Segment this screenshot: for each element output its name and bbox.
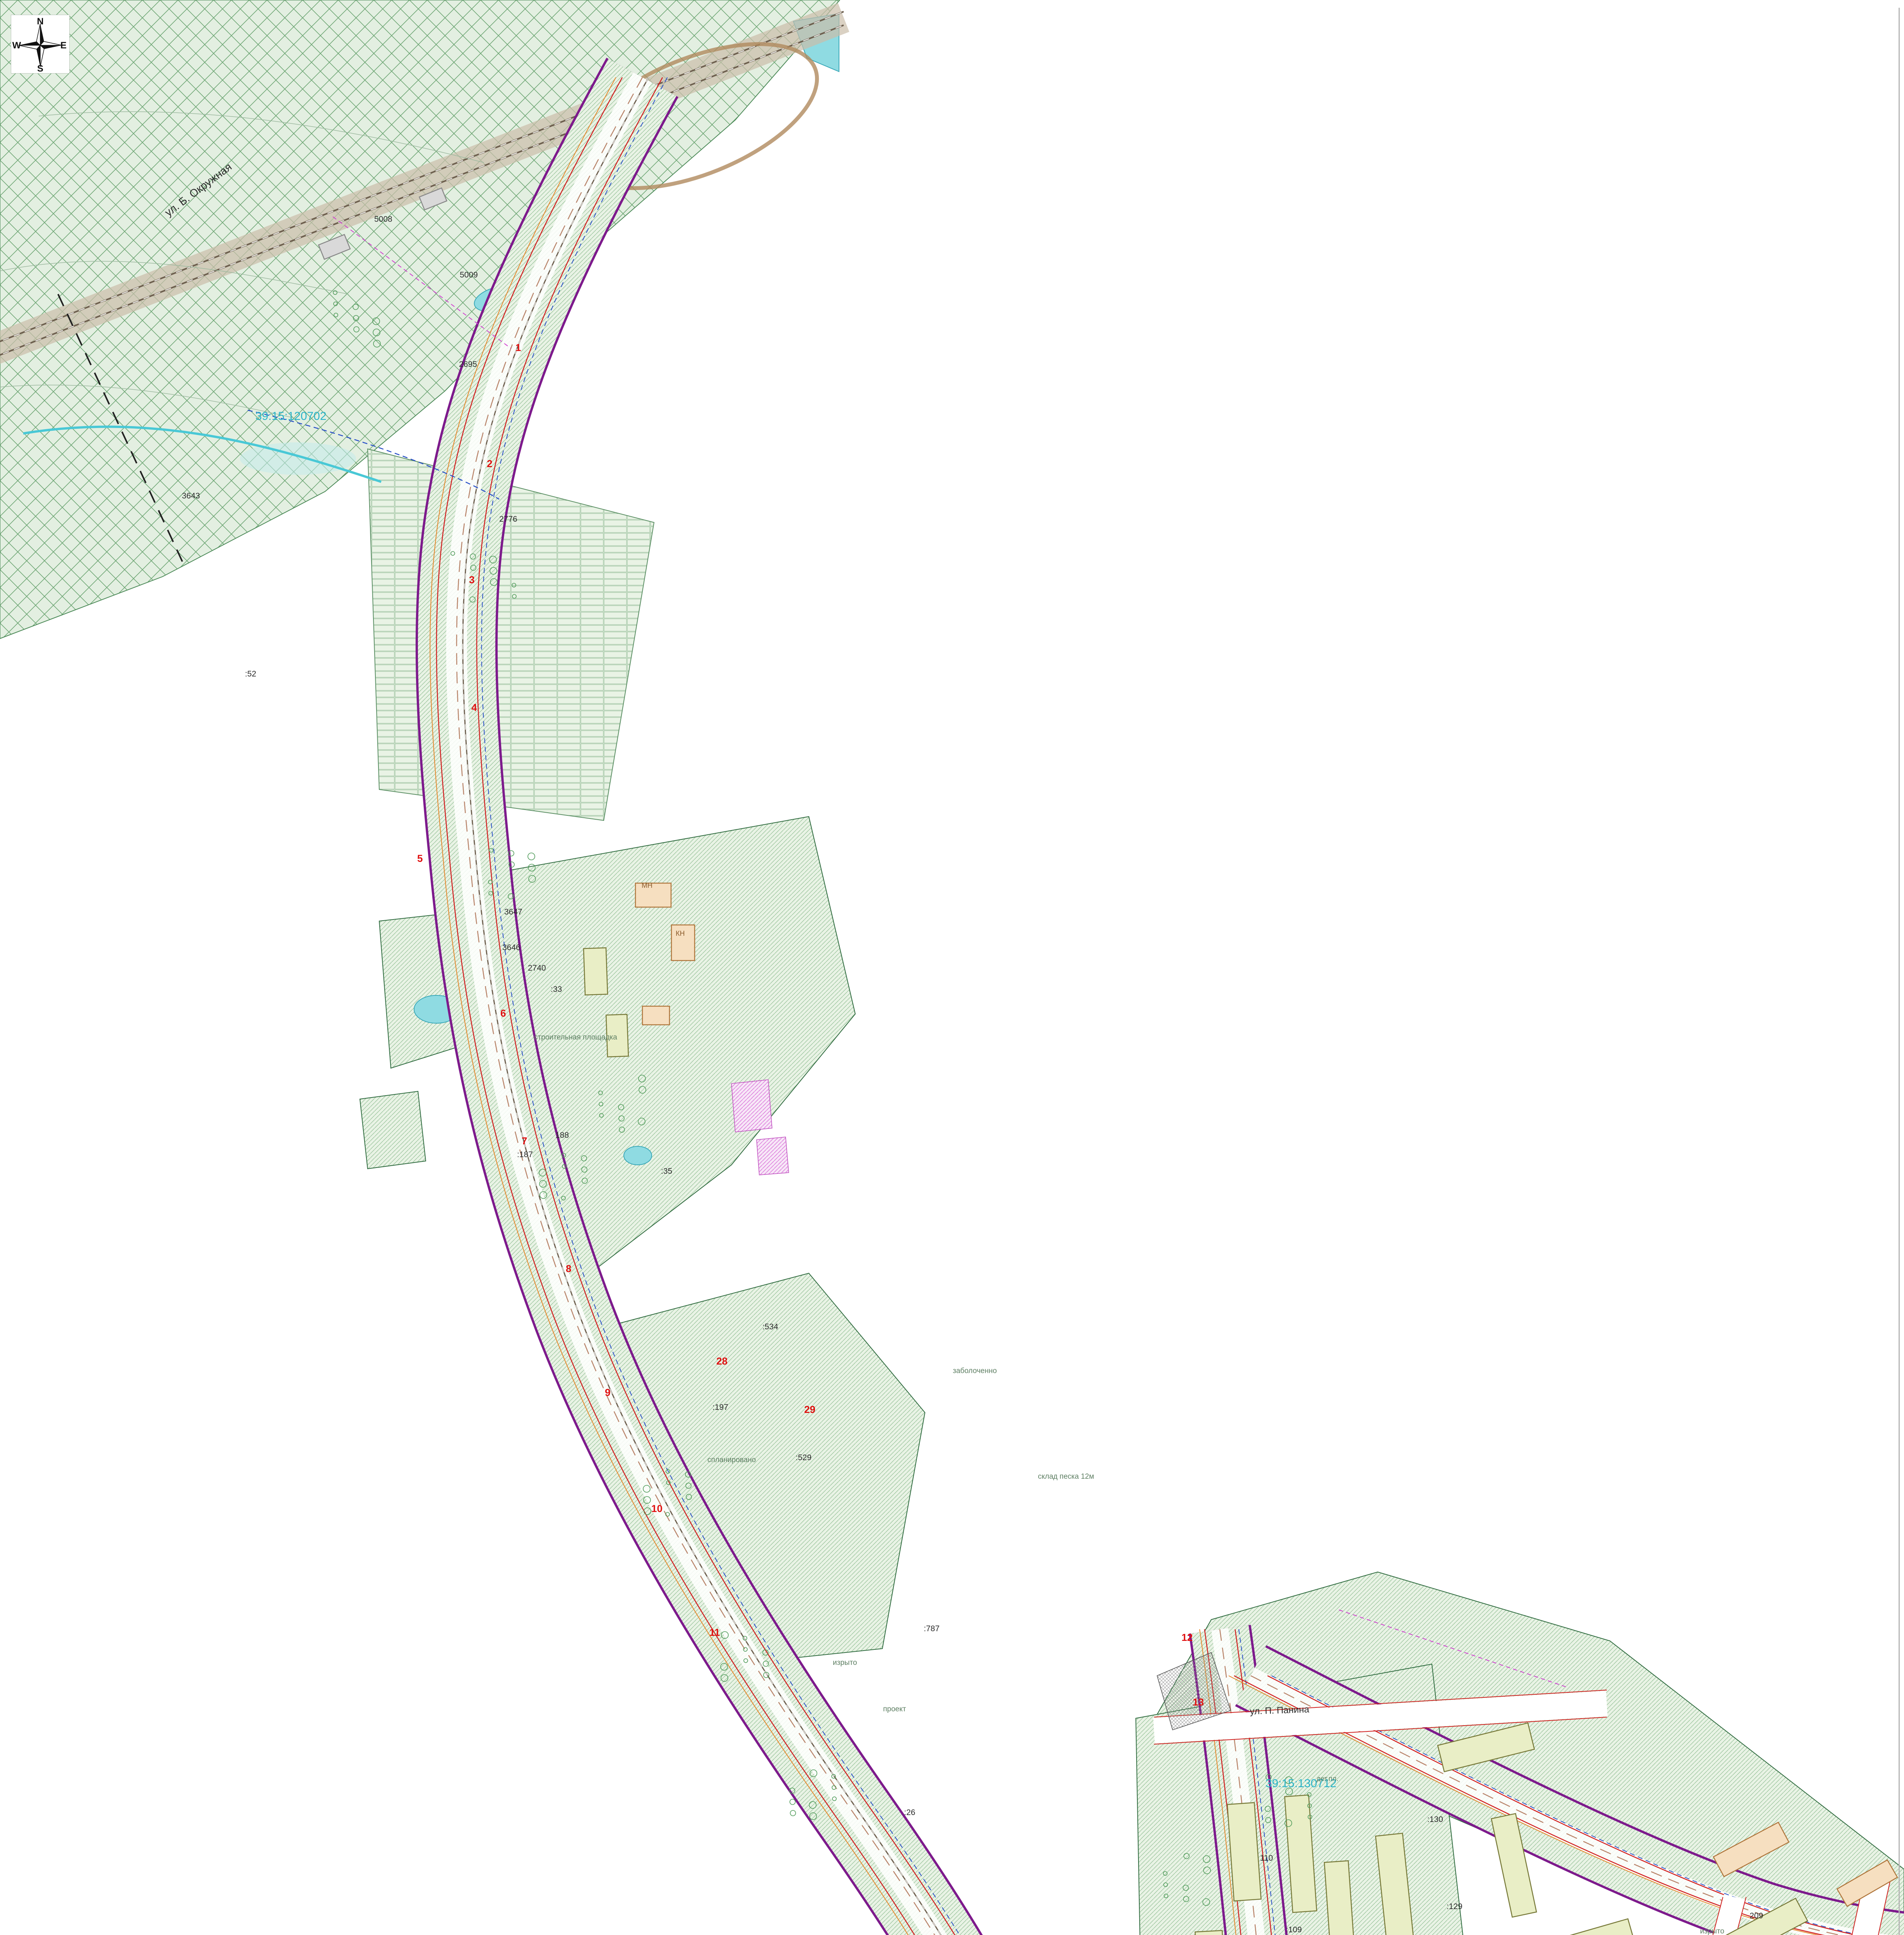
map-label: :187 bbox=[517, 1150, 533, 1159]
map-label: 28 bbox=[716, 1355, 728, 1367]
map-label: :787 bbox=[924, 1624, 940, 1633]
map-label: :534 bbox=[762, 1322, 778, 1331]
map-label: :26 bbox=[904, 1808, 915, 1817]
map-label: строительная площадка bbox=[534, 1033, 617, 1041]
map-label: :129 bbox=[1447, 1902, 1462, 1911]
map-label: :109 bbox=[1286, 1925, 1302, 1934]
map-label: 2 bbox=[487, 458, 492, 469]
map-label: 5 bbox=[417, 853, 423, 864]
map-label: спланировано bbox=[707, 1456, 756, 1464]
map-label: 3643 bbox=[182, 491, 200, 500]
map-label: 5008 bbox=[374, 215, 392, 224]
compass-rose: N E S W bbox=[11, 15, 70, 74]
map-label: 7 bbox=[522, 1135, 527, 1147]
map-label: изрыто bbox=[833, 1659, 857, 1667]
page-border-right bbox=[1899, 8, 1900, 1935]
map-base-layer bbox=[0, 0, 1904, 1935]
map-label: 8 bbox=[566, 1263, 571, 1274]
map-label: 110 bbox=[1260, 1854, 1273, 1863]
map-label: :33 bbox=[551, 985, 562, 994]
map-label: проект bbox=[883, 1705, 906, 1713]
compass-w: W bbox=[12, 40, 21, 51]
map-label: 5009 bbox=[460, 271, 478, 279]
map-label: склад песка 12м bbox=[1038, 1473, 1094, 1481]
map-label: 13 bbox=[1193, 1696, 1204, 1708]
map-label: дет.пл. bbox=[1317, 1775, 1338, 1783]
map-label: 3647 bbox=[504, 908, 522, 916]
map-label: 209 bbox=[1750, 1911, 1763, 1920]
compass-e: E bbox=[60, 40, 67, 51]
map-label: 29 bbox=[804, 1404, 815, 1415]
map-label: МН bbox=[642, 882, 652, 889]
map-canvas: ул. Б. Окружнаяул. Согласияул. П. Панина… bbox=[0, 0, 1904, 1935]
map-label: 9 bbox=[605, 1387, 610, 1398]
map-label: 1 bbox=[515, 342, 521, 353]
map-label: :197 bbox=[712, 1403, 728, 1412]
map-label: :52 bbox=[245, 670, 256, 678]
map-label: 2740 bbox=[528, 964, 546, 973]
compass-n: N bbox=[37, 16, 43, 27]
map-label: 3646 bbox=[502, 943, 521, 952]
map-label: :130 bbox=[1427, 1815, 1443, 1824]
map-label: 11 bbox=[709, 1627, 720, 1638]
map-label: 12 bbox=[1181, 1632, 1193, 1643]
map-label: :529 bbox=[796, 1453, 812, 1462]
map-label: КН bbox=[676, 930, 685, 937]
map-label: :35 bbox=[661, 1167, 672, 1176]
plan-sheet: ул. Б. Окружнаяул. Согласияул. П. Панина… bbox=[0, 0, 1904, 1935]
map-label: 6 bbox=[500, 1007, 506, 1019]
map-label: ул. П. Панина bbox=[1250, 1704, 1310, 1717]
map-label: 10 bbox=[651, 1503, 663, 1514]
map-label: 188 bbox=[555, 1131, 569, 1140]
map-label: 3 bbox=[469, 574, 474, 586]
map-label: 4 bbox=[471, 702, 477, 713]
map-label: изрыто bbox=[1700, 1927, 1724, 1935]
map-label: 39:15:120702 bbox=[255, 410, 327, 423]
map-label: заболоченно bbox=[953, 1367, 997, 1375]
compass-s: S bbox=[37, 63, 43, 73]
map-label: 2695 bbox=[459, 360, 477, 369]
map-label: 2776 bbox=[499, 515, 517, 524]
